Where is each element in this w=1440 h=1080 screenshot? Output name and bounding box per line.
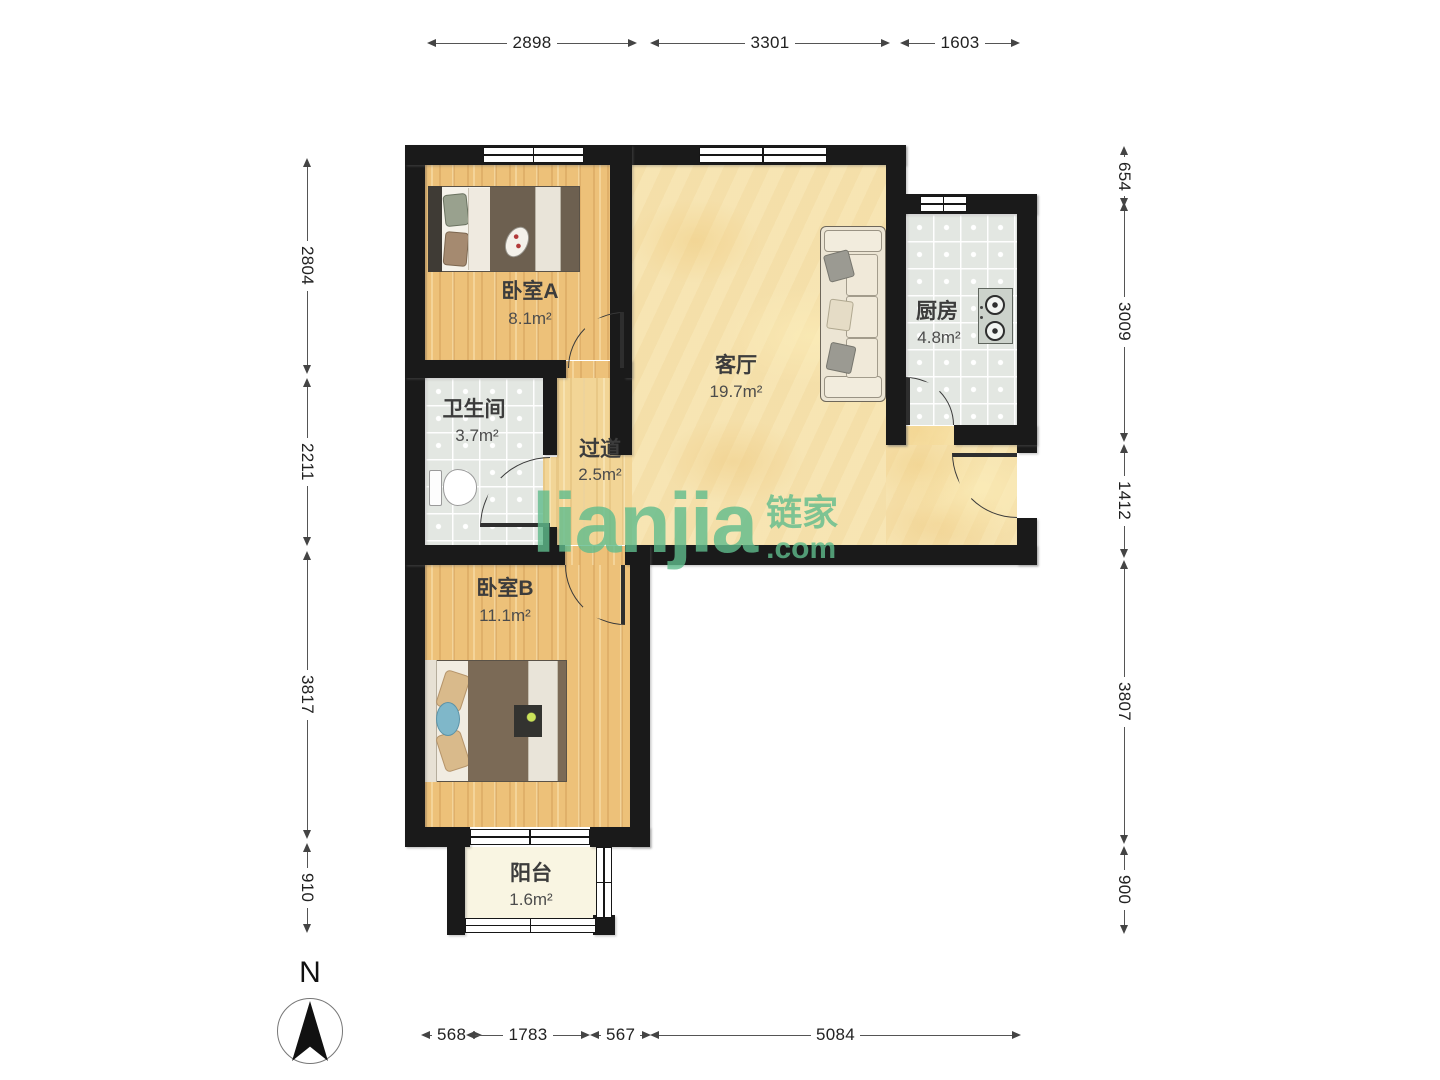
label-hallway: 过道	[520, 439, 680, 460]
arrow-up-icon	[1120, 560, 1128, 569]
wall-top-outer	[405, 145, 906, 165]
sofa-armrest-top	[824, 230, 882, 252]
arrow-left-icon	[421, 1031, 430, 1039]
dim-bottom-2: 1783	[466, 1026, 590, 1044]
sofa-pillow-tan	[826, 298, 854, 331]
balcony-door-frame	[470, 829, 590, 845]
area-balcony: 1.6m²	[451, 891, 611, 908]
window-balcony-bottom	[465, 918, 596, 933]
wall-bathroom-top-left	[405, 360, 566, 378]
arrow-left-icon	[650, 1031, 659, 1039]
area-bedroom-b: 11.1m²	[425, 607, 585, 624]
dim-top-3: 1603	[900, 34, 1020, 52]
dim-bottom-1: 568	[421, 1026, 466, 1044]
label-bedroom-a: 卧室A	[450, 281, 610, 302]
arrow-left-icon	[427, 39, 436, 47]
dim-right-3: 1412	[1113, 444, 1135, 558]
arrow-down-icon	[303, 924, 311, 933]
arrow-right-icon	[881, 39, 890, 47]
compass-north-label: N	[276, 956, 344, 990]
area-living-room: 19.7m²	[656, 383, 816, 400]
lianjia-logo-cjk: 链家	[766, 494, 838, 532]
wall-balcony-post	[593, 915, 615, 935]
lianjia-watermark: lianjia 链家 .com	[532, 468, 838, 578]
lianjia-logo-text: lianjia	[532, 468, 756, 578]
arrow-up-icon	[1120, 202, 1128, 211]
arrow-down-icon	[1120, 925, 1128, 934]
arrow-up-icon	[303, 843, 311, 852]
arrow-down-icon	[303, 365, 311, 374]
wall-bedroom-b-bottom-left	[405, 827, 470, 847]
wall-bathroom-top-right	[624, 360, 632, 378]
wall-kitchen-bottom-left	[886, 425, 906, 445]
arrow-down-icon	[1120, 433, 1128, 442]
arrow-left-icon	[466, 1031, 475, 1039]
dim-left-4: 910	[296, 843, 318, 933]
wall-bedroom-a-right	[610, 145, 632, 455]
arrow-left-icon	[900, 39, 909, 47]
dim-bottom-3: 567	[590, 1026, 640, 1044]
dim-right-5: 900	[1113, 846, 1135, 934]
wall-left-outer	[405, 145, 425, 845]
arrow-down-icon	[303, 830, 311, 839]
label-balcony: 阳台	[451, 863, 611, 884]
window-kitchen	[920, 196, 967, 212]
toilet-tank	[429, 470, 442, 506]
arrow-right-icon	[1011, 39, 1020, 47]
bed-a-sheet	[468, 188, 490, 270]
bed-b-round-pillow	[436, 702, 460, 736]
wall-right-upper	[1017, 194, 1037, 453]
dim-left-1: 2804	[296, 158, 318, 374]
dim-left-3: 3817	[296, 551, 318, 839]
arrow-up-icon	[1120, 444, 1128, 453]
arrow-up-icon	[303, 378, 311, 387]
sofa-armrest-bottom	[824, 376, 882, 398]
arrow-left-icon	[590, 1031, 599, 1039]
bed-a-headboard	[428, 186, 442, 272]
wall-bedroom-b-bottom-right	[590, 827, 650, 847]
bed-a-pillow-2	[443, 231, 470, 267]
wall-bedroom-b-right	[630, 545, 650, 847]
dim-left-2: 2211	[296, 378, 318, 546]
window-bedroom-a	[483, 147, 584, 163]
arrow-down-icon	[303, 537, 311, 546]
floorplan-canvas: 卧室A 8.1m² 卫生间 3.7m² 过道 2.5m² 客厅 19.7m² 厨…	[0, 0, 1440, 1080]
label-kitchen: 厨房	[857, 301, 1017, 322]
bed-b-tray	[514, 705, 542, 737]
dim-top-2: 3301	[650, 34, 890, 52]
arrow-right-icon	[1012, 1031, 1021, 1039]
arrow-down-icon	[1120, 835, 1128, 844]
bed-a-duvet-stripe	[535, 187, 561, 271]
arrow-down-icon	[1120, 549, 1128, 558]
label-living-room: 客厅	[656, 355, 816, 376]
label-bedroom-b: 卧室B	[425, 578, 585, 599]
window-living-room	[699, 147, 827, 163]
label-bathroom: 卫生间	[394, 399, 554, 420]
dim-bottom-4: 5084	[650, 1026, 1021, 1044]
arrow-up-icon	[1120, 146, 1128, 155]
arrow-left-icon	[650, 39, 659, 47]
lianjia-logo-suffix: .com	[766, 534, 838, 564]
dim-right-4: 3807	[1113, 560, 1135, 844]
arrow-right-icon	[581, 1031, 590, 1039]
arrow-right-icon	[628, 39, 637, 47]
wall-kitchen-bottom-right	[954, 425, 1037, 445]
area-bedroom-a: 8.1m²	[450, 310, 610, 327]
dim-top-1: 2898	[427, 34, 637, 52]
dim-right-2: 3009	[1113, 202, 1135, 442]
arrow-up-icon	[1120, 846, 1128, 855]
arrow-up-icon	[303, 551, 311, 560]
dim-right-1: 654	[1113, 146, 1135, 200]
arrow-up-icon	[303, 158, 311, 167]
area-kitchen: 4.8m²	[859, 329, 1019, 346]
bed-a-pillow-1	[442, 193, 469, 227]
threshold-kitchen	[906, 426, 954, 445]
